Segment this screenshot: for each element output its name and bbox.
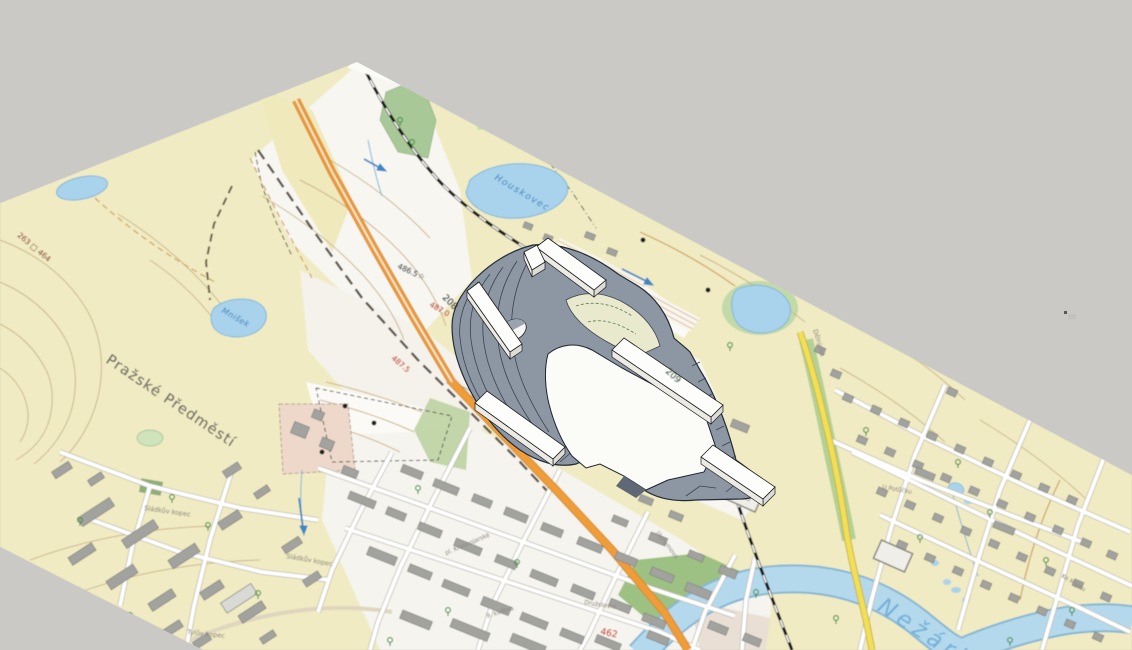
sketchup-viewport[interactable]: Pražské PředměstíHouskovecMnišekNežárka4… [0, 0, 1132, 650]
survey-point [320, 450, 325, 455]
survey-point [641, 238, 646, 243]
scene-canvas[interactable]: Pražské PředměstíHouskovecMnišekNežárka4… [0, 0, 1132, 650]
survey-point [343, 404, 348, 409]
survey-point [372, 421, 377, 426]
survey-point [706, 288, 711, 293]
